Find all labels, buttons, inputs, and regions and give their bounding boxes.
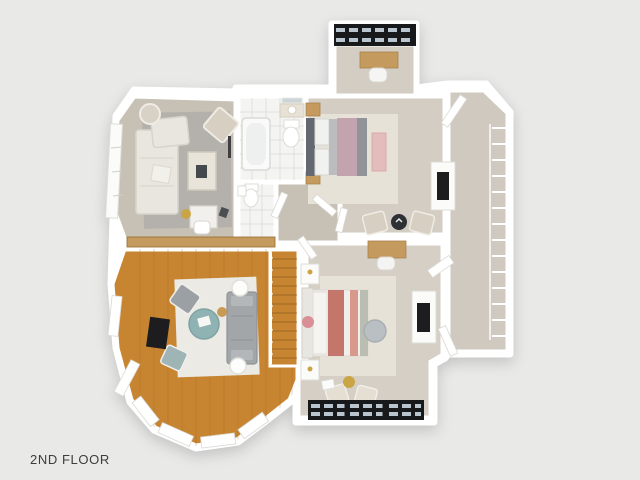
floor-label: 2ND FLOOR <box>30 452 110 467</box>
gold-stool <box>181 209 191 219</box>
round-side-table <box>140 104 160 124</box>
floor-lamp <box>228 136 231 158</box>
master-tv <box>417 303 430 332</box>
master-desk-chair <box>377 257 395 270</box>
wc-sink <box>238 186 246 196</box>
master-desk <box>368 241 406 258</box>
master-window-bank <box>308 400 424 420</box>
floorplan-canvas: 2ND FLOOR <box>0 0 640 480</box>
rug-cushion <box>321 379 334 390</box>
master-ottoman <box>364 320 386 342</box>
bedroom2-round-table <box>391 214 407 230</box>
family-tv <box>146 317 170 349</box>
nightstand-b2-top <box>306 103 320 116</box>
floorplan-rendering <box>0 0 640 480</box>
side-table-bottom <box>230 358 246 374</box>
bedroom2-chair-left <box>362 211 388 236</box>
nook-desk-chair <box>369 68 387 82</box>
vanity-mirror <box>282 98 302 103</box>
desk-chair <box>194 221 210 234</box>
closet-floor <box>448 90 508 352</box>
bedroom2-tv <box>437 172 449 200</box>
headboard-flowers <box>302 316 314 328</box>
wood-sideboard-ledge <box>127 237 275 247</box>
toilet <box>283 120 299 147</box>
second-floor-plan <box>106 24 510 448</box>
side-table-top <box>232 280 248 296</box>
bedroom2-chair-right <box>409 211 435 236</box>
nook-desk <box>360 52 398 68</box>
coffee-table-book <box>196 165 207 178</box>
family-sofa <box>227 292 257 364</box>
master-side-table <box>343 376 355 388</box>
bedroom2-skylight-window <box>334 24 416 46</box>
pink-bench <box>372 133 386 171</box>
master-bed <box>302 288 368 358</box>
wood-stool <box>217 307 227 317</box>
staircase <box>269 250 298 366</box>
